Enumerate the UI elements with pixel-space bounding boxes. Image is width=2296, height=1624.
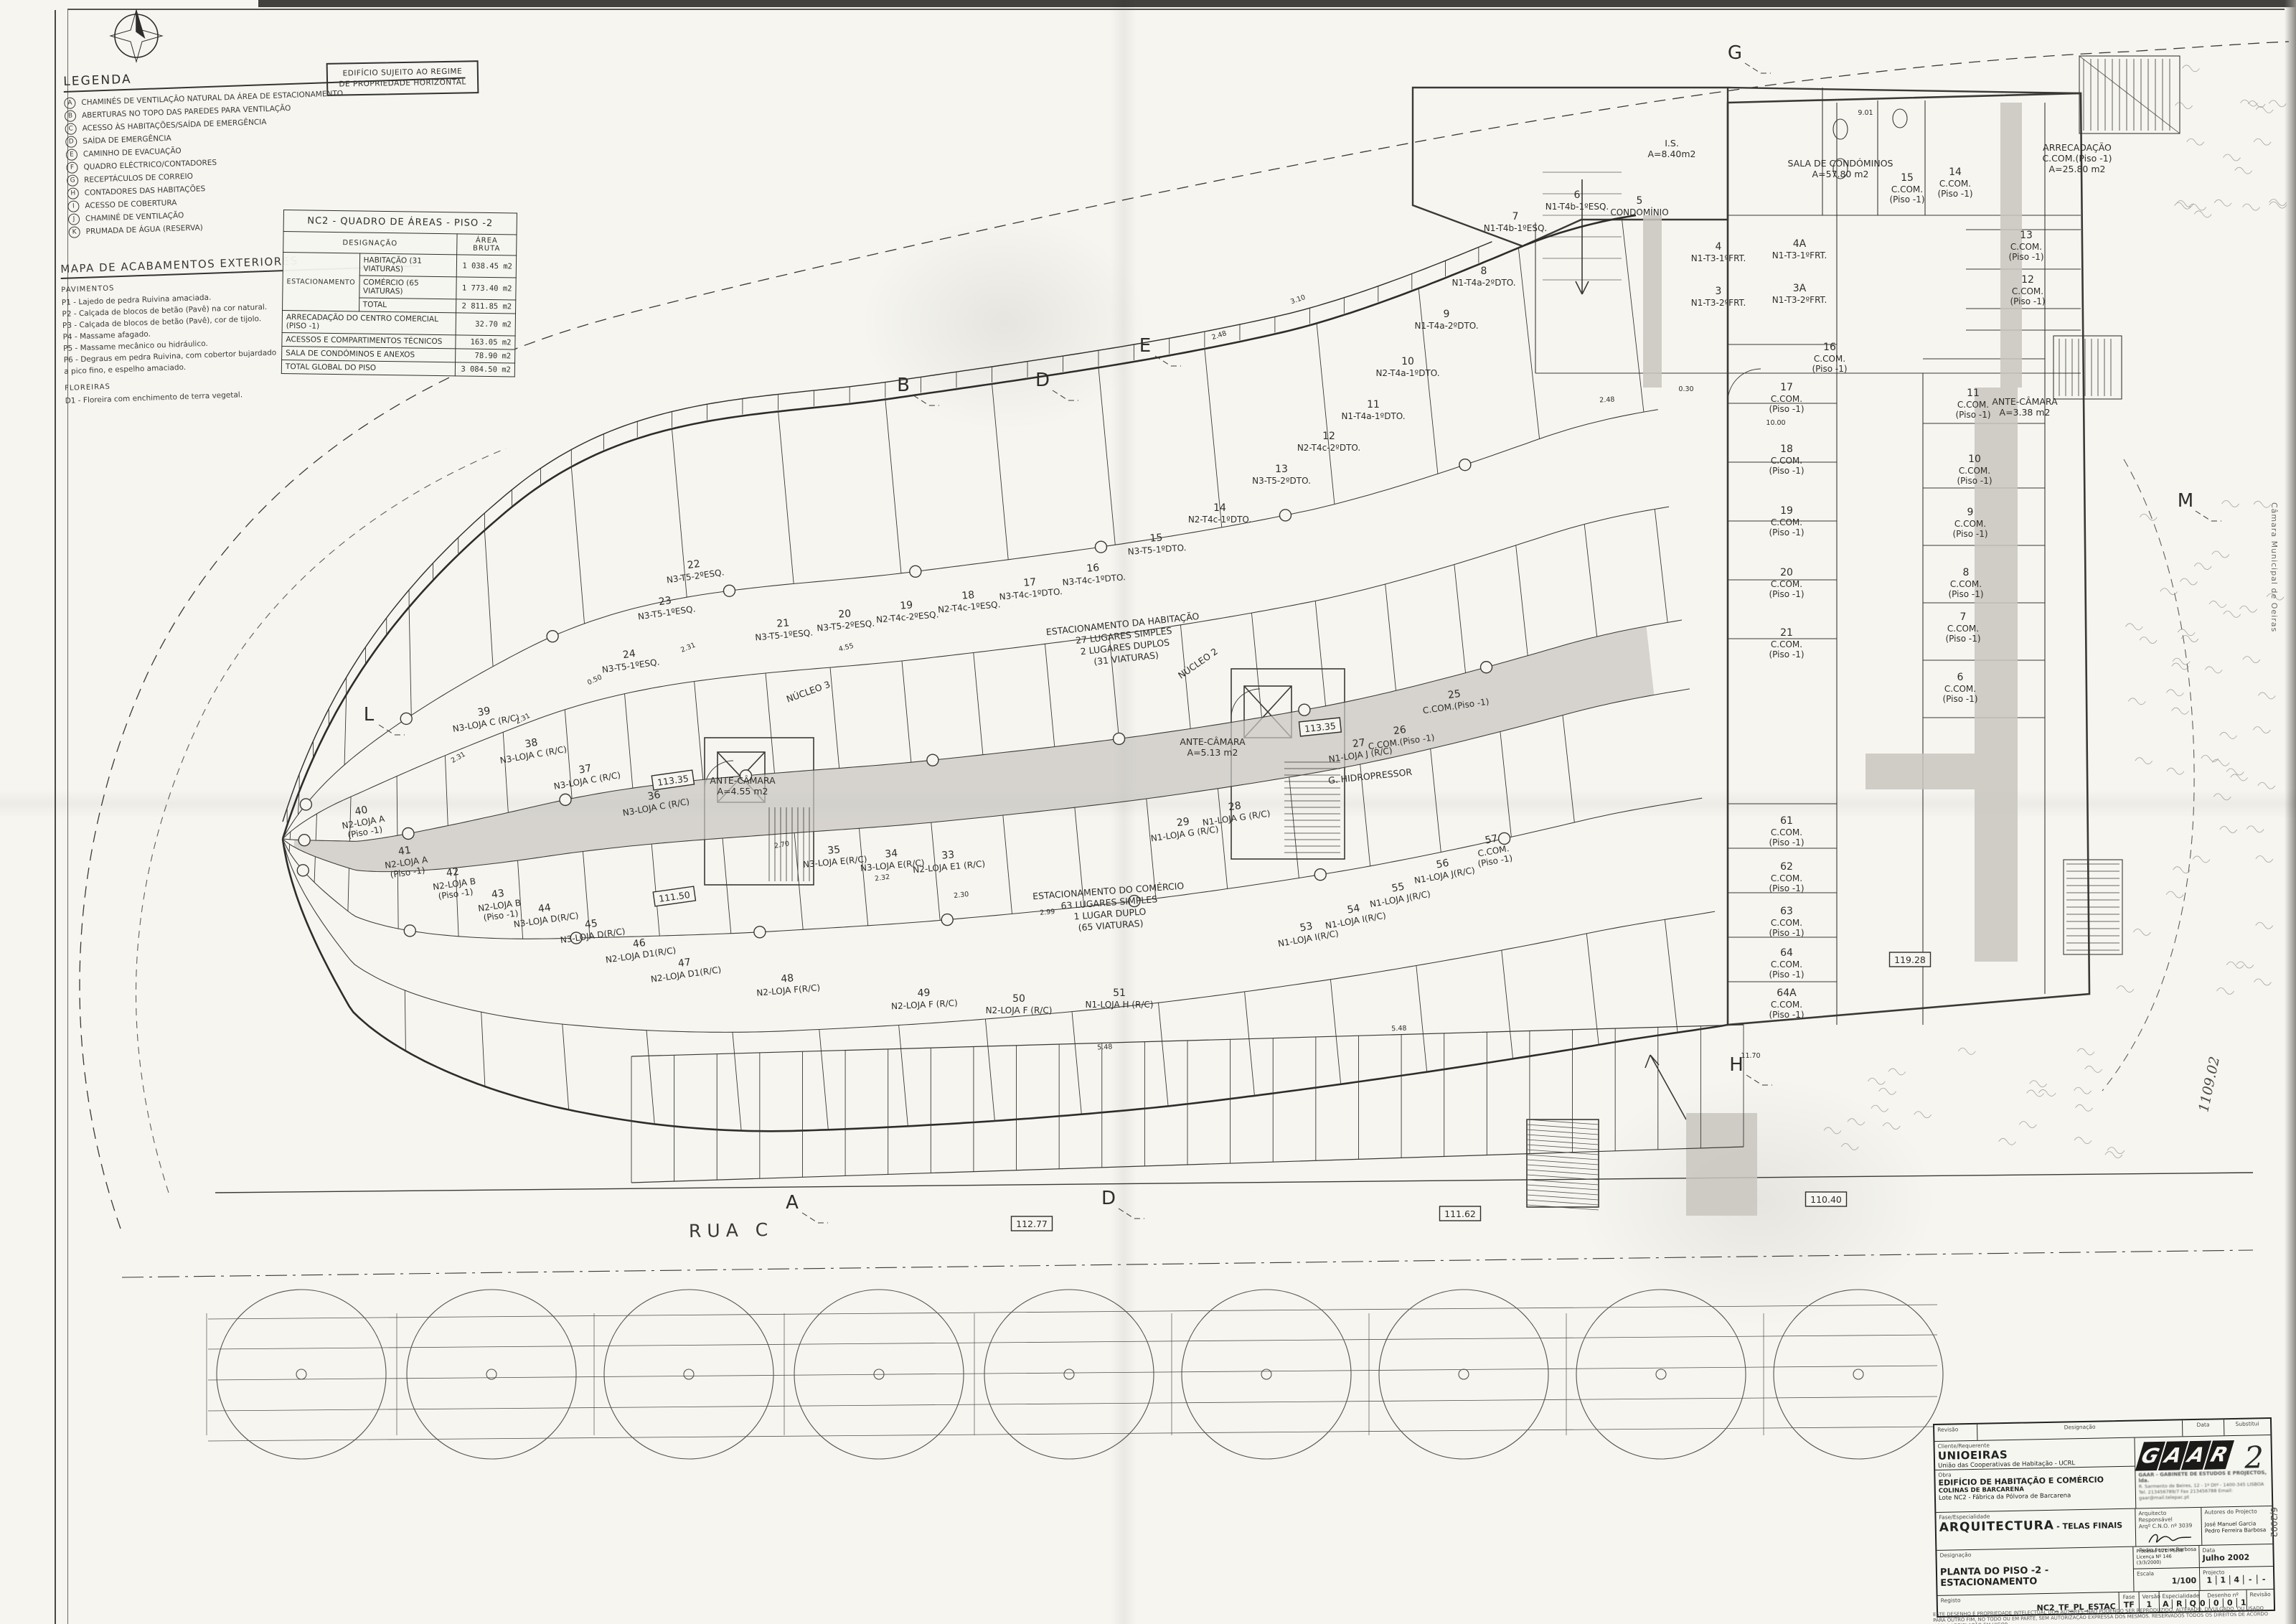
stall-label: 6N1-T4b-1ºESQ.	[1545, 189, 1609, 212]
svg-text:49: 49	[917, 987, 931, 1000]
svg-text:C.COM.: C.COM.	[1771, 827, 1802, 837]
svg-text:119.28: 119.28	[1894, 954, 1926, 965]
area-table-title: NC2 - QUADRO DE ÁREAS - PISO -2	[283, 210, 517, 235]
svg-text:(Piso -1): (Piso -1)	[1955, 410, 1990, 420]
svg-text:C.COM.: C.COM.	[1771, 918, 1802, 928]
svg-text:C.COM.: C.COM.	[1771, 579, 1802, 589]
stall-label: 18N2-T4c-1ºESQ.	[936, 587, 1001, 615]
svg-text:48: 48	[781, 972, 794, 985]
svg-text:2.32: 2.32	[874, 873, 890, 883]
designacao-cell: COMÉRCIO (65 VIATURAS)	[359, 276, 456, 299]
svg-text:C.COM.: C.COM.	[1950, 579, 1982, 589]
svg-text:N3-T4c-1ºDTO.: N3-T4c-1ºDTO.	[999, 586, 1063, 602]
legend-key-icon: B	[65, 110, 77, 122]
svg-text:(Piso -1): (Piso -1)	[1769, 589, 1804, 599]
dimension-text: 2.31	[679, 642, 697, 654]
svg-text:10.00: 10.00	[1766, 419, 1785, 427]
svg-text:39: 39	[476, 705, 491, 719]
svg-text:(Piso -1): (Piso -1)	[1769, 649, 1804, 660]
table-row: ARRECADAÇÃO DO CENTRO COMERCIAL (PISO -1…	[282, 310, 515, 336]
svg-text:64A: 64A	[1777, 987, 1797, 999]
svg-text:(Piso -1): (Piso -1)	[1948, 589, 1983, 599]
cliente-label: Cliente/Requerente	[1938, 1440, 2132, 1450]
legend-key-icon: D	[65, 136, 77, 148]
svg-text:17: 17	[1780, 382, 1793, 393]
svg-text:2.99: 2.99	[1040, 908, 1055, 917]
grid-letter: G	[1728, 42, 1771, 73]
dimension-text: 2.48	[1599, 395, 1615, 404]
svg-text:(Piso -1): (Piso -1)	[2010, 296, 2045, 306]
svg-text:110.40: 110.40	[1810, 1194, 1842, 1205]
svg-text:(Piso -1): (Piso -1)	[1952, 529, 1987, 539]
svg-text:6: 6	[1957, 672, 1964, 683]
svg-text:(Piso -1): (Piso -1)	[2008, 252, 2043, 262]
legend-key-icon: H	[67, 187, 80, 200]
stall-label: 3AN1-T3-2ºFRT.	[1772, 283, 1827, 305]
svg-text:N2-T4c-2ºDTO.: N2-T4c-2ºDTO.	[1297, 443, 1360, 453]
svg-text:M: M	[2178, 490, 2193, 512]
dimension-text: 10.00	[1766, 419, 1785, 427]
designacao-cell: HABITAÇÃO (31 VIATURAS)	[359, 253, 457, 277]
svg-text:9: 9	[1967, 507, 1974, 518]
area-cell: 2 811.85 m2	[456, 299, 515, 314]
svg-text:42: 42	[446, 866, 460, 879]
dimension-text: 5.48	[1097, 1043, 1113, 1051]
legend-key-icon: J	[68, 213, 80, 225]
svg-text:26: 26	[1393, 724, 1407, 737]
rev-label: Revisão	[1937, 1426, 1974, 1433]
stall-label: 21N3-T5-1ºESQ.	[753, 616, 813, 643]
svg-text:E: E	[1139, 335, 1151, 357]
room-label: G. HIDROPRESSOR	[1327, 766, 1413, 786]
svg-text:C.COM.: C.COM.	[1771, 639, 1802, 649]
svg-text:ANTE-CÂMARA: ANTE-CÂMARA	[710, 775, 776, 786]
projecto-cells: 114--	[2203, 1574, 2270, 1585]
svg-text:N3-T5-1ºESQ.: N3-T5-1ºESQ.	[755, 627, 814, 642]
svg-text:L: L	[364, 704, 375, 726]
fase-suffix: - TELAS FINAIS	[2056, 1521, 2122, 1531]
svg-text:46: 46	[632, 937, 646, 950]
svg-text:7: 7	[1960, 611, 1967, 623]
group-label: ESTACIONAMENTO	[283, 253, 360, 311]
svg-text:N1-T4a-2ºDTO.: N1-T4a-2ºDTO.	[1414, 321, 1478, 331]
svg-text:C.COM.: C.COM.	[1944, 684, 1976, 694]
svg-text:50: 50	[1012, 993, 1025, 1005]
svg-text:C.COM.: C.COM.	[1771, 959, 1802, 970]
edge-archive-code: 6/2002	[2269, 1507, 2279, 1537]
svg-text:9.01: 9.01	[1858, 109, 1873, 117]
rev-substitui: Substitui	[2227, 1420, 2267, 1427]
svg-text:111.62: 111.62	[1444, 1208, 1476, 1219]
svg-text:112.77: 112.77	[1016, 1219, 1048, 1229]
escala-value: 1/100	[2172, 1576, 2197, 1586]
svg-text:2.48: 2.48	[1599, 395, 1615, 404]
area-cell: 1 038.45 m2	[456, 255, 517, 278]
table-row: TOTAL GLOBAL DO PISO3 084.50 m2	[281, 360, 514, 377]
svg-text:A=4.55 m2: A=4.55 m2	[717, 786, 768, 797]
svg-text:20: 20	[838, 608, 852, 620]
stall-label: 16N3-T4c-1ºDTO.	[1061, 560, 1126, 588]
rev-data: Data	[2186, 1421, 2221, 1428]
svg-text:N1-T3-2ºFRT.: N1-T3-2ºFRT.	[1772, 295, 1827, 305]
svg-text:N2-T4a-1ºDTO.: N2-T4a-1ºDTO.	[1375, 368, 1439, 378]
svg-text:29: 29	[1176, 816, 1190, 829]
stall-label: 20N3-T5-2ºESQ.	[815, 606, 875, 634]
stall-label: 10N2-T4a-1ºDTO.	[1375, 356, 1439, 378]
svg-text:61: 61	[1780, 815, 1793, 827]
stall-label: 46N2-LOJA D1(R/C)	[603, 933, 677, 964]
svg-text:18: 18	[1780, 443, 1793, 455]
svg-text:3A: 3A	[1793, 283, 1807, 294]
stall-label: 49N2-LOJA F (R/C)	[890, 986, 958, 1012]
north-arrow-icon	[110, 10, 162, 62]
stall-label: 24N3-T5-1ºESQ.	[600, 645, 660, 675]
svg-text:16: 16	[1823, 342, 1836, 353]
stall-label: 18C.COM.(Piso -1)	[1769, 443, 1804, 476]
stall-label: 14C.COM.(Piso -1)	[1937, 166, 1972, 199]
svg-text:13: 13	[2020, 230, 2033, 241]
stall-label: 8N1-T4a-2ºDTO.	[1452, 266, 1515, 288]
stall-label: 21C.COM.(Piso -1)	[1769, 627, 1804, 660]
stall-label: 13N3-T5-2ºDTO.	[1252, 464, 1311, 486]
svg-text:35: 35	[827, 844, 841, 856]
svg-text:C.COM.(Piso -1): C.COM.(Piso -1)	[2042, 153, 2112, 164]
legend-key-icon: C	[65, 123, 77, 135]
svg-text:8: 8	[1963, 567, 1970, 578]
svg-text:44: 44	[537, 902, 552, 915]
drawing-sheet: 3N1-T3-2ºFRT.3AN1-T3-2ºFRT.4N1-T3-1ºFRT.…	[0, 0, 2296, 1624]
svg-text:37: 37	[578, 763, 592, 776]
grid-letter: B	[897, 375, 939, 405]
svg-text:C.COM.: C.COM.	[1771, 1000, 1802, 1010]
svg-text:C.COM.: C.COM.	[1959, 466, 1990, 476]
svg-text:N3-T5-2ºESQ.: N3-T5-2ºESQ.	[817, 618, 875, 633]
svg-text:A=5.13 m2: A=5.13 m2	[1187, 747, 1238, 758]
edge-stamp-text: Câmara Municipal de Oeiras	[2269, 502, 2279, 632]
svg-text:3: 3	[1716, 286, 1722, 297]
boxed-dimension: 111.62	[1440, 1206, 1481, 1221]
dimension-text: 11.70	[1741, 1052, 1760, 1060]
svg-text:N2-LOJA F (R/C): N2-LOJA F (R/C)	[986, 1005, 1053, 1015]
street-name: RUA C	[689, 1219, 774, 1242]
svg-text:7: 7	[1512, 211, 1519, 222]
dimension-text: 2.32	[874, 873, 890, 883]
svg-text:47: 47	[677, 957, 692, 970]
svg-text:C.COM.: C.COM.	[2010, 242, 2042, 252]
svg-text:B: B	[897, 375, 910, 396]
svg-text:18: 18	[961, 589, 975, 601]
versao-col: Versão	[2142, 1593, 2155, 1600]
svg-text:ARRECADAÇÃO: ARRECADAÇÃO	[2043, 142, 2112, 153]
stall-label: 48N2-LOJA F(R/C)	[755, 970, 820, 998]
stall-label: 28N1-LOJA G (R/C)	[1200, 797, 1271, 828]
svg-text:38: 38	[524, 737, 538, 751]
svg-text:(Piso -1): (Piso -1)	[1812, 364, 1847, 374]
svg-text:(Piso -1): (Piso -1)	[1769, 837, 1804, 848]
svg-text:A=25.80 m2: A=25.80 m2	[2049, 164, 2106, 174]
svg-text:(Piso -1): (Piso -1)	[1942, 694, 1977, 704]
room-label: NÚCLEO 2	[1176, 646, 1220, 681]
dimension-text: 4.55	[838, 642, 855, 654]
room-label: I.S.A=8.40m2	[1648, 138, 1696, 159]
svg-text:C.COM.: C.COM.	[1939, 179, 1971, 189]
svg-text:13: 13	[1275, 464, 1288, 475]
stall-label: 22N3-T5-2ºESQ.	[664, 555, 725, 586]
stall-label: 56N1-LOJA J(R/C)	[1411, 853, 1476, 886]
svg-text:C.COM.: C.COM.	[2012, 286, 2043, 296]
stall-label: 3N1-T3-2ºFRT.	[1691, 286, 1746, 308]
svg-text:5.48: 5.48	[1391, 1025, 1407, 1033]
stall-label: 50N2-LOJA F (R/C)	[986, 993, 1053, 1015]
col-area: ÁREA BRUTA	[456, 234, 517, 255]
autor-2: Pedro Ferreira Barbosa	[2205, 1526, 2269, 1534]
boxed-dimension: 110.40	[1806, 1192, 1847, 1206]
svg-text:A: A	[786, 1192, 799, 1214]
stall-label: 12N2-T4c-2ºDTO.	[1297, 431, 1360, 453]
arq-label: Arquitecto Responsável	[2138, 1509, 2198, 1524]
stall-label: 35N3-LOJA E(R/C)	[801, 842, 867, 870]
svg-text:24: 24	[622, 648, 636, 661]
svg-text:(Piso -1): (Piso -1)	[1769, 527, 1804, 538]
stall-label: 37N3-LOJA C (R/C)	[551, 758, 621, 792]
svg-text:N2-T4c-1ºESQ.: N2-T4c-1ºESQ.	[938, 599, 1001, 615]
col-designacao: DESIGNAÇÃO	[283, 232, 457, 255]
stall-label: 17N3-T4c-1ºDTO.	[998, 574, 1063, 602]
stall-label: 11N1-T4a-1ºDTO.	[1341, 399, 1405, 421]
legend-key-icon: F	[66, 161, 78, 174]
svg-text:0.30: 0.30	[1678, 385, 1693, 393]
grid-letter: D	[1101, 1188, 1144, 1219]
svg-text:C.COM.: C.COM.	[1771, 517, 1802, 527]
svg-text:14: 14	[1213, 502, 1226, 514]
area-cell: 3 084.50 m2	[455, 362, 514, 377]
svg-text:3.10: 3.10	[1289, 294, 1307, 306]
designacao-cell: TOTAL	[359, 298, 456, 313]
svg-text:NÚCLEO 3: NÚCLEO 3	[785, 679, 832, 705]
legend-key-icon: K	[68, 226, 80, 238]
stall-label: 15C.COM.(Piso -1)	[1889, 172, 1924, 205]
dimension-text: 3.10	[1289, 294, 1307, 306]
svg-text:4A: 4A	[1793, 238, 1807, 250]
stall-label: 4AN1-T3-1ºFRT.	[1772, 238, 1827, 261]
svg-text:A=8.40m2: A=8.40m2	[1648, 149, 1696, 159]
svg-text:N1-T3-2ºFRT.: N1-T3-2ºFRT.	[1691, 298, 1746, 308]
svg-text:56: 56	[1435, 858, 1449, 871]
fase-value: ARQUITECTURA	[1939, 1519, 2055, 1535]
room-label: NÚCLEO 3	[785, 679, 832, 705]
dimension-text: 5.48	[1391, 1025, 1407, 1033]
svg-text:G: G	[1728, 42, 1742, 64]
svg-text:A=3.38 m2: A=3.38 m2	[2000, 407, 2051, 418]
svg-text:64: 64	[1780, 947, 1793, 959]
svg-text:N1-T3-1ºFRT.: N1-T3-1ºFRT.	[1772, 250, 1827, 261]
designacao-value: PLANTA DO PISO -2 - ESTACIONAMENTO	[1940, 1564, 2131, 1589]
svg-text:2.30: 2.30	[954, 891, 969, 900]
dimension-text: 0.30	[1678, 385, 1693, 393]
svg-text:C.COM.: C.COM.	[1771, 456, 1802, 466]
dimension-text: 2.30	[954, 891, 969, 900]
svg-text:15: 15	[1149, 532, 1163, 544]
svg-text:N1-T3-1ºFRT.: N1-T3-1ºFRT.	[1691, 253, 1746, 263]
stall-label: 40N2-LOJA A(Piso -1)	[339, 802, 388, 841]
title-block: Revisão Designação Data Substitui Client…	[1933, 1417, 2275, 1618]
stall-label: 63C.COM.(Piso -1)	[1769, 906, 1804, 938]
area-cell: 32.70 m2	[456, 313, 516, 336]
svg-text:36: 36	[646, 789, 661, 803]
svg-text:C.COM.: C.COM.	[1947, 624, 1979, 634]
stall-label: 39N3-LOJA C (R/C)	[450, 700, 520, 734]
svg-text:12: 12	[1322, 431, 1335, 442]
room-label: ANTE-CÂMARAA=4.55 m2	[710, 775, 776, 797]
area-cell: 1 773.40 m2	[456, 277, 517, 300]
stall-label: 38N3-LOJA C (R/C)	[497, 732, 568, 766]
stall-label: 14N2-T4c-1ºDTO.	[1188, 502, 1251, 525]
legend-key-icon: I	[67, 200, 80, 212]
svg-text:2.48: 2.48	[1210, 329, 1228, 342]
empresa-3: Tel. 213456789/7 Fax 213456788 Email: ga…	[2139, 1487, 2269, 1501]
legend-key-icon: A	[64, 97, 76, 109]
rev-col: Revisão	[2249, 1591, 2270, 1598]
svg-text:21: 21	[776, 617, 790, 629]
stall-label: 9N1-T4a-2ºDTO.	[1414, 309, 1478, 331]
dimension-text: 0.50	[586, 673, 603, 687]
room-label: ARRECADAÇÃOC.COM.(Piso -1)A=25.80 m2	[2042, 142, 2112, 174]
svg-text:0.50: 0.50	[586, 673, 603, 687]
svg-text:NÚCLEO 2: NÚCLEO 2	[1176, 646, 1220, 681]
svg-text:11.70: 11.70	[1741, 1052, 1760, 1060]
designacao-cell: ARRECADAÇÃO DO CENTRO COMERCIAL (PISO -1…	[282, 310, 456, 334]
svg-text:45: 45	[584, 918, 598, 931]
svg-text:N1-T4a-2ºDTO.: N1-T4a-2ºDTO.	[1452, 278, 1515, 288]
svg-text:11: 11	[1967, 388, 1980, 399]
svg-text:63: 63	[1780, 906, 1793, 917]
svg-text:C.COM.: C.COM.	[1957, 400, 1989, 410]
signature	[2139, 1529, 2201, 1546]
svg-text:N1-T4b-1ºESQ.: N1-T4b-1ºESQ.	[1545, 202, 1609, 212]
stall-label: 64C.COM.(Piso -1)	[1769, 947, 1804, 980]
svg-text:9: 9	[1444, 309, 1450, 320]
svg-text:(Piso -1): (Piso -1)	[1769, 928, 1804, 938]
svg-text:20: 20	[1780, 567, 1793, 578]
svg-text:C.COM.: C.COM.	[1771, 873, 1802, 883]
svg-text:C.COM.: C.COM.	[1954, 519, 1986, 529]
svg-text:C.COM.: C.COM.	[1891, 184, 1923, 194]
stall-label: 7N1-T4b-1ºESQ.	[1484, 211, 1548, 233]
svg-text:(Piso -1): (Piso -1)	[1937, 189, 1972, 199]
stall-label: 19N2-T4c-2ºESQ.	[875, 597, 939, 625]
svg-text:A=57.80 m2: A=57.80 m2	[1812, 169, 1869, 179]
svg-text:41: 41	[397, 845, 412, 858]
svg-text:23: 23	[658, 595, 672, 608]
stall-label: 43N2-LOJA B(Piso -1)	[476, 886, 523, 924]
svg-text:10: 10	[1968, 454, 1981, 465]
svg-text:11: 11	[1367, 399, 1380, 410]
svg-text:62: 62	[1780, 861, 1793, 873]
svg-text:G. HIDROPRESSOR: G. HIDROPRESSOR	[1327, 766, 1413, 786]
svg-text:28: 28	[1228, 800, 1242, 813]
cliente-nome: UNIOEIRAS	[1938, 1448, 2008, 1463]
svg-text:(Piso -1): (Piso -1)	[1957, 476, 1992, 486]
svg-text:5: 5	[1637, 195, 1643, 207]
stall-label: 15N3-T5-1ºDTO.	[1126, 530, 1187, 557]
fase-col: Fase	[2122, 1594, 2135, 1600]
svg-text:2.31: 2.31	[679, 642, 697, 654]
stall-label: 20C.COM.(Piso -1)	[1769, 567, 1804, 599]
stall-label: 51N1-LOJA H (R/C)	[1086, 987, 1154, 1010]
stall-label: 64AC.COM.(Piso -1)	[1769, 987, 1804, 1020]
svg-text:6: 6	[1574, 189, 1581, 201]
svg-text:10: 10	[1401, 356, 1414, 367]
area-table: NC2 - QUADRO DE ÁREAS - PISO -2 DESIGNAÇ…	[281, 210, 517, 377]
svg-text:ANTE-CÂMARA: ANTE-CÂMARA	[1992, 396, 2058, 407]
boxed-dimension: 111.50	[653, 886, 695, 906]
legend-key-icon: G	[67, 174, 79, 187]
stall-label: 17C.COM.(Piso -1)	[1769, 382, 1804, 414]
svg-text:N2-T4c-2ºESQ.: N2-T4c-2ºESQ.	[876, 609, 939, 625]
svg-text:D: D	[1101, 1188, 1116, 1209]
svg-text:14: 14	[1949, 166, 1962, 178]
svg-text:(Piso -1): (Piso -1)	[1769, 970, 1804, 980]
svg-text:4: 4	[1716, 241, 1722, 253]
licenca: Licença Nº 146 (3/3/2000)	[2137, 1553, 2196, 1566]
svg-text:22: 22	[687, 558, 701, 571]
svg-text:N1-LOJA H (R/C): N1-LOJA H (R/C)	[1086, 1000, 1154, 1010]
svg-text:CONDOMÍNIO: CONDOMÍNIO	[1610, 207, 1668, 217]
svg-text:53: 53	[1299, 921, 1313, 934]
svg-text:43: 43	[491, 888, 505, 901]
svg-text:C.COM.: C.COM.	[1814, 354, 1845, 364]
grid-letter: A	[786, 1192, 828, 1223]
svg-text:(Piso -1): (Piso -1)	[1769, 1010, 1804, 1020]
dimension-text: 2.99	[1040, 908, 1055, 917]
svg-text:(Piso -1): (Piso -1)	[1769, 883, 1804, 893]
svg-text:(Piso -1): (Piso -1)	[1769, 404, 1804, 414]
svg-text:15: 15	[1901, 172, 1914, 184]
dimension-text: 2.70	[773, 840, 790, 850]
stall-label: 16C.COM.(Piso -1)	[1812, 342, 1847, 374]
area-cell: 78.90 m2	[455, 349, 514, 363]
table-row: ESTACIONAMENTOHABITAÇÃO (31 VIATURAS)1 0…	[283, 253, 516, 278]
room-label: ANTE-CÂMARAA=3.38 m2	[1992, 396, 2058, 418]
svg-text:N3-T4c-1ºDTO.: N3-T4c-1ºDTO.	[1062, 572, 1126, 588]
designacao-cell: TOTAL GLOBAL DO PISO	[281, 360, 455, 375]
grid-letter: M	[2178, 490, 2221, 521]
stall-label: 62C.COM.(Piso -1)	[1769, 861, 1804, 893]
svg-text:N2-LOJA F(R/C): N2-LOJA F(R/C)	[756, 982, 821, 998]
svg-text:ANTE-CÂMARA: ANTE-CÂMARA	[1180, 736, 1246, 747]
rev-designacao: Designação	[1980, 1422, 2179, 1432]
designacao-label: Designação	[1939, 1549, 2130, 1559]
svg-text:16: 16	[1086, 562, 1100, 574]
stall-label: 61C.COM.(Piso -1)	[1769, 815, 1804, 848]
svg-text:4.55: 4.55	[838, 642, 855, 654]
stall-label: 5CONDOMÍNIO	[1610, 195, 1668, 217]
stall-label: 6C.COM.(Piso -1)	[1942, 672, 1977, 704]
svg-text:5.48: 5.48	[1097, 1043, 1113, 1051]
svg-text:N3-T5-1ºDTO.: N3-T5-1ºDTO.	[1127, 543, 1187, 557]
stall-label: 19C.COM.(Piso -1)	[1769, 505, 1804, 538]
boxed-dimension: 112.77	[1012, 1216, 1053, 1231]
boxed-dimension: 119.28	[1890, 952, 1931, 967]
legend-key-icon: E	[66, 149, 78, 161]
svg-text:57: 57	[1484, 833, 1498, 847]
room-label: ANTE-CÂMARAA=5.13 m2	[1180, 736, 1246, 758]
svg-text:19: 19	[900, 599, 913, 611]
svg-text:51: 51	[1113, 987, 1126, 999]
svg-text:N1-T4b-1ºESQ.: N1-T4b-1ºESQ.	[1484, 223, 1548, 233]
svg-text:D: D	[1035, 370, 1050, 391]
dimension-text: 9.01	[1858, 109, 1873, 117]
